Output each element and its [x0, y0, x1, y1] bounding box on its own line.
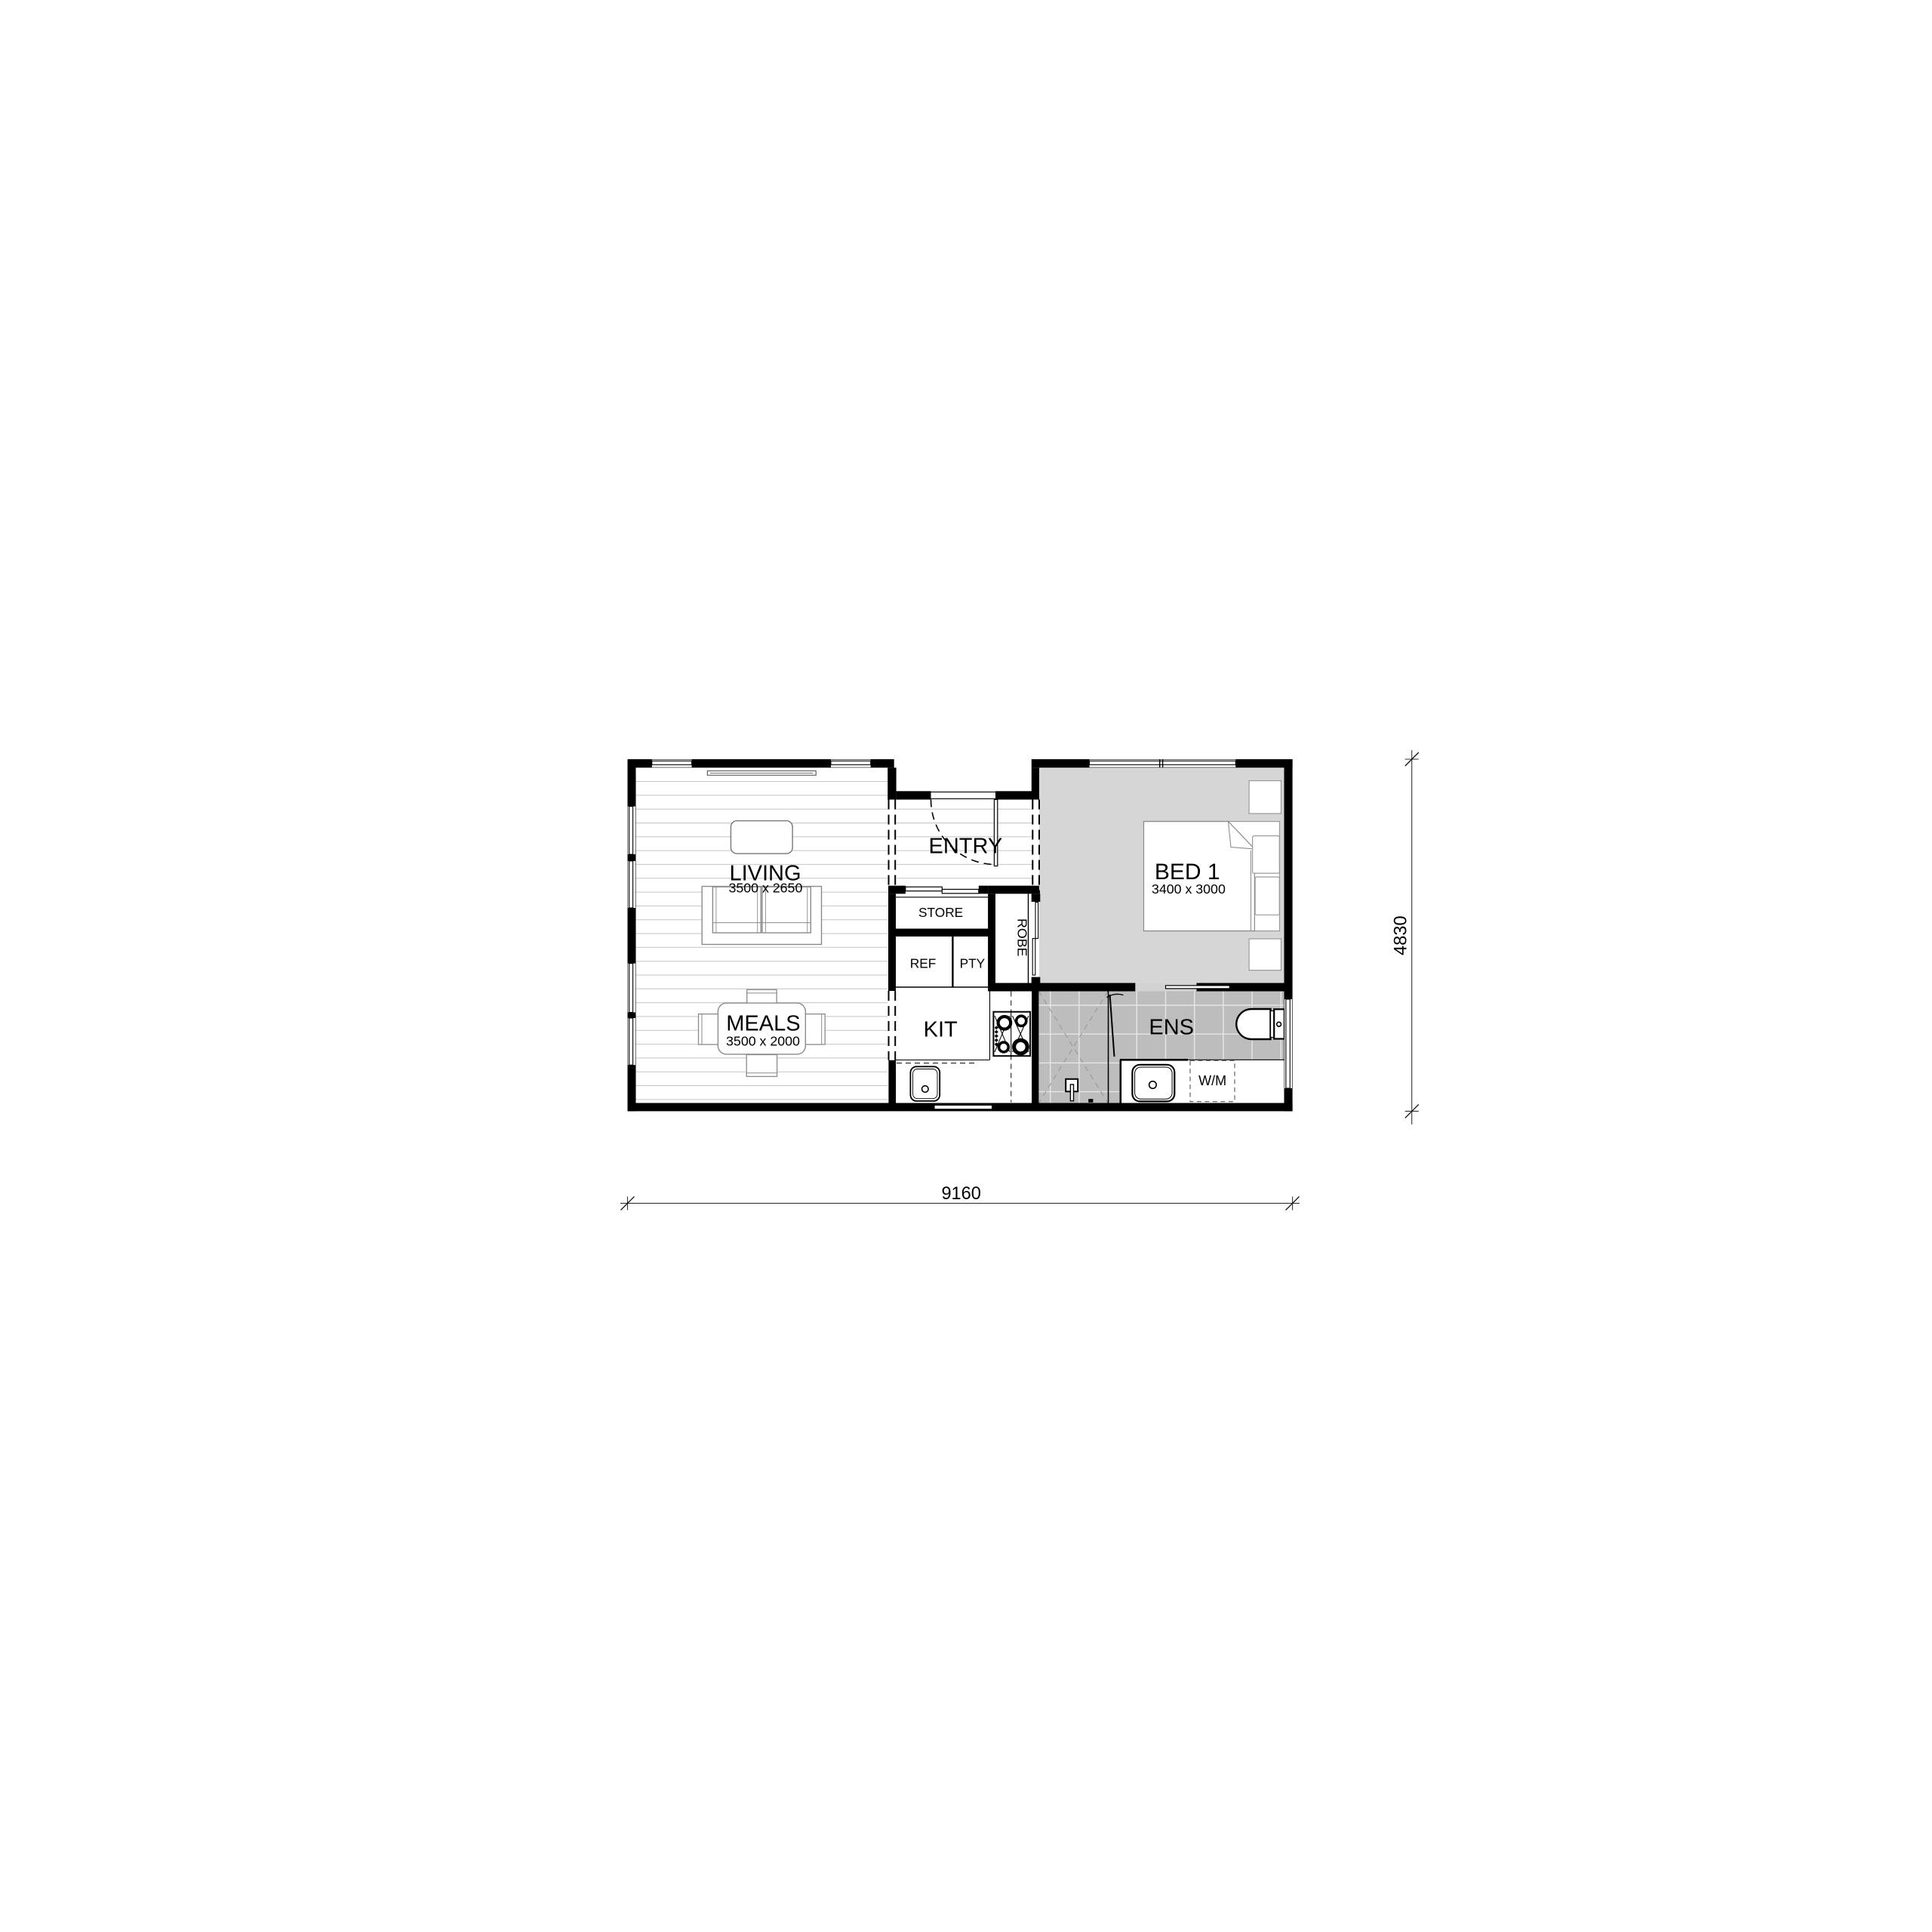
svg-text:3400 x 3000: 3400 x 3000 — [1152, 881, 1226, 897]
svg-text:MEALS: MEALS — [726, 1011, 800, 1035]
svg-text:STORE: STORE — [918, 905, 963, 920]
svg-text:3500 x 2650: 3500 x 2650 — [728, 880, 802, 895]
svg-text:ENS: ENS — [1149, 1016, 1194, 1040]
svg-text:4830: 4830 — [1392, 915, 1411, 955]
svg-text:KIT: KIT — [924, 1017, 958, 1041]
svg-text:ENTRY: ENTRY — [929, 834, 1003, 858]
svg-text:PTY: PTY — [960, 956, 986, 971]
svg-text:ROBE: ROBE — [1015, 918, 1030, 957]
svg-text:REF: REF — [910, 956, 937, 971]
svg-text:W/M: W/M — [1198, 1073, 1226, 1088]
svg-text:3500 x 2000: 3500 x 2000 — [726, 1034, 800, 1049]
svg-text:9160: 9160 — [941, 1184, 981, 1204]
